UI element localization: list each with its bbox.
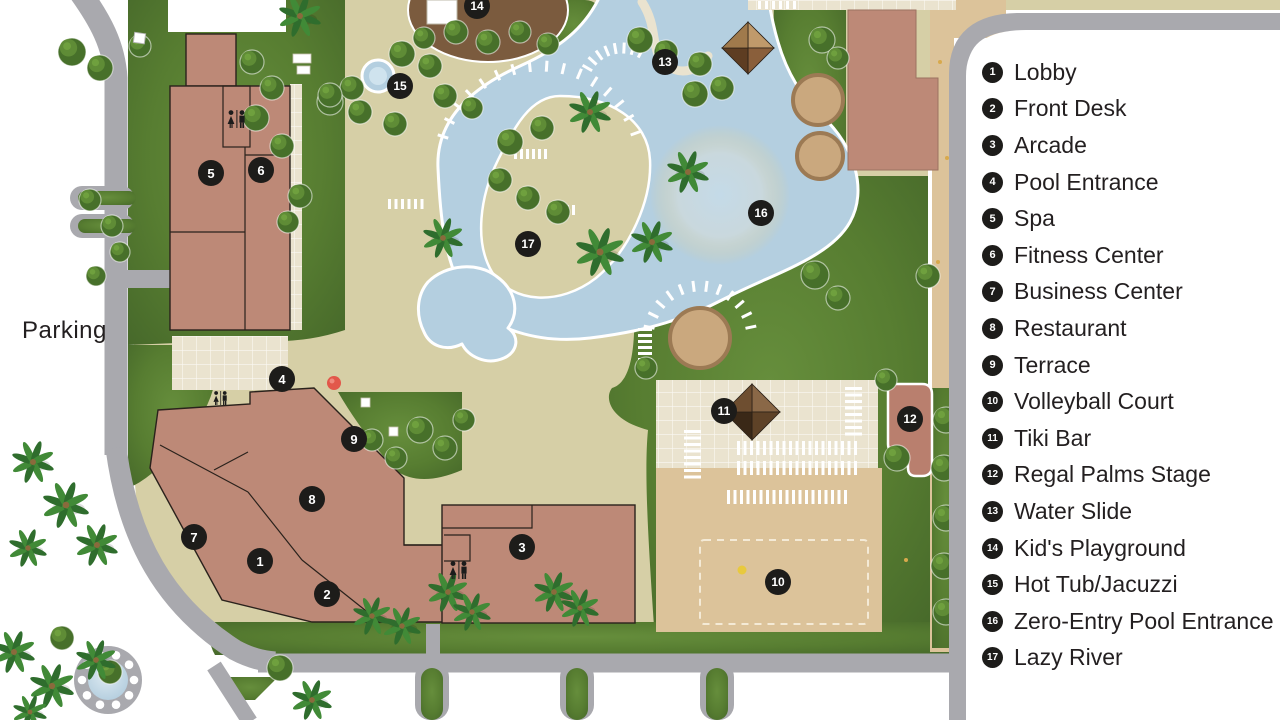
legend-item-4: 4Pool Entrance xyxy=(982,164,1274,201)
bush-icon xyxy=(79,189,101,211)
bush-icon xyxy=(488,168,512,192)
map-marker-2: 2 xyxy=(314,581,340,607)
map-marker-16: 16 xyxy=(748,200,774,226)
bush-icon xyxy=(433,84,457,108)
map-marker-10: 10 xyxy=(765,569,791,595)
palm-tree-icon xyxy=(8,528,47,567)
legend-bullet: 12 xyxy=(982,464,1003,485)
legend-item-16: 16Zero-Entry Pool Entrance xyxy=(982,603,1274,640)
map-marker-1: 1 xyxy=(247,548,273,574)
bush-icon xyxy=(710,76,734,100)
legend-item-15: 15Hot Tub/Jacuzzi xyxy=(982,566,1274,603)
legend-label: Business Center xyxy=(1014,278,1183,305)
legend-bullet: 4 xyxy=(982,172,1003,193)
bush-icon xyxy=(277,211,299,233)
legend-item-11: 11Tiki Bar xyxy=(982,420,1274,457)
bush-icon xyxy=(407,417,433,443)
legend-item-17: 17Lazy River xyxy=(982,640,1274,677)
bush-icon xyxy=(58,38,86,66)
bush-icon xyxy=(389,41,415,67)
bush-icon xyxy=(243,105,269,131)
map-marker-6: 6 xyxy=(248,157,274,183)
map-marker-12: 12 xyxy=(897,406,923,432)
legend-item-1: 1Lobby xyxy=(982,54,1274,91)
bush-icon xyxy=(826,286,850,310)
legend-item-13: 13Water Slide xyxy=(982,493,1274,530)
bush-icon xyxy=(348,100,372,124)
map-marker-7: 7 xyxy=(181,524,207,550)
bush-icon xyxy=(50,626,74,650)
bush-icon xyxy=(87,55,113,81)
legend-item-2: 2Front Desk xyxy=(982,91,1274,128)
legend-bullet: 6 xyxy=(982,245,1003,266)
legend-label: Lobby xyxy=(1014,59,1077,86)
legend-item-8: 8Restaurant xyxy=(982,310,1274,347)
legend-list: 1Lobby2Front Desk3Arcade4Pool Entrance5S… xyxy=(982,54,1274,676)
legend-label: Pool Entrance xyxy=(1014,169,1158,196)
palm-tree-icon xyxy=(13,695,48,720)
bush-icon xyxy=(383,112,407,136)
bush-icon xyxy=(385,447,407,469)
legend-label: Terrace xyxy=(1014,352,1091,379)
legend-label: Lazy River xyxy=(1014,644,1123,671)
bush-icon xyxy=(288,184,312,208)
bush-icon xyxy=(260,76,284,100)
map-marker-5: 5 xyxy=(198,160,224,186)
map-marker-4: 4 xyxy=(269,366,295,392)
map-marker-13: 13 xyxy=(652,49,678,75)
legend-label: Hot Tub/Jacuzzi xyxy=(1014,571,1178,598)
legend-label: Tiki Bar xyxy=(1014,425,1091,452)
legend-item-14: 14Kid's Playground xyxy=(982,530,1274,567)
palm-tree-icon xyxy=(42,481,90,529)
map-marker-9: 9 xyxy=(341,426,367,452)
bush-icon xyxy=(827,47,849,69)
legend-bullet: 17 xyxy=(982,647,1003,668)
legend-item-6: 6Fitness Center xyxy=(982,237,1274,274)
bush-icon xyxy=(461,97,483,119)
white-gap xyxy=(168,0,286,32)
legend-bullet: 5 xyxy=(982,208,1003,229)
bush-icon xyxy=(270,134,294,158)
legend-label: Arcade xyxy=(1014,132,1087,159)
bush-icon xyxy=(516,186,540,210)
legend-item-7: 7Business Center xyxy=(982,274,1274,311)
bush-icon xyxy=(110,242,130,262)
palm-tree-icon xyxy=(291,679,332,720)
bush-icon xyxy=(627,27,653,53)
volleyball xyxy=(738,566,747,575)
bush-icon xyxy=(340,76,364,100)
legend-item-12: 12Regal Palms Stage xyxy=(982,457,1274,494)
legend-label: Kid's Playground xyxy=(1014,535,1186,562)
bush-icon xyxy=(86,266,106,286)
legend-label: Regal Palms Stage xyxy=(1014,461,1211,488)
bush-icon xyxy=(635,357,657,379)
map-marker-17: 17 xyxy=(515,231,541,257)
bush-icon xyxy=(546,200,570,224)
legend-item-9: 9Terrace xyxy=(982,347,1274,384)
parking-label: Parking xyxy=(22,317,107,345)
sign xyxy=(133,32,145,43)
bush-icon xyxy=(240,50,264,74)
bush-icon xyxy=(875,369,897,391)
bush-icon xyxy=(267,655,293,681)
bush-icon xyxy=(530,116,554,140)
bush-icon xyxy=(318,83,342,107)
legend-label: Volleyball Court xyxy=(1014,388,1174,415)
bush-icon xyxy=(682,81,708,107)
legend-label: Restaurant xyxy=(1014,315,1127,342)
legend-bullet: 16 xyxy=(982,611,1003,632)
bush-icon xyxy=(537,33,559,55)
legend-label: Fitness Center xyxy=(1014,242,1164,269)
bush-icon xyxy=(101,215,123,237)
legend-bullet: 1 xyxy=(982,62,1003,83)
legend-bullet: 13 xyxy=(982,501,1003,522)
palm-tree-icon xyxy=(0,630,36,674)
bush-icon xyxy=(453,409,475,431)
legend-label: Spa xyxy=(1014,205,1055,232)
legend-item-5: 5Spa xyxy=(982,200,1274,237)
legend-bullet: 9 xyxy=(982,355,1003,376)
legend-bullet: 2 xyxy=(982,98,1003,119)
legend-bullet: 14 xyxy=(982,538,1003,559)
map-marker-11: 11 xyxy=(711,398,737,424)
legend-bullet: 11 xyxy=(982,428,1003,449)
legend-item-3: 3Arcade xyxy=(982,127,1274,164)
legend-bullet: 8 xyxy=(982,318,1003,339)
legend-label: Front Desk xyxy=(1014,95,1126,122)
legend-bullet: 7 xyxy=(982,281,1003,302)
bush-icon xyxy=(418,54,442,78)
bush-icon xyxy=(884,445,910,471)
bush-icon xyxy=(476,30,500,54)
palm-tree-icon xyxy=(11,440,55,484)
bush-icon xyxy=(688,52,712,76)
resort-map-page: Parking 1234567891011121314151617 1Lobby… xyxy=(0,0,1280,720)
red-ball xyxy=(327,376,341,390)
legend-item-10: 10Volleyball Court xyxy=(982,383,1274,420)
map-marker-15: 15 xyxy=(387,73,413,99)
bush-icon xyxy=(433,436,457,460)
legend-bullet: 15 xyxy=(982,574,1003,595)
zero-entry-fade xyxy=(650,125,790,265)
bush-icon xyxy=(444,20,468,44)
map-marker-3: 3 xyxy=(509,534,535,560)
legend-bullet: 10 xyxy=(982,391,1003,412)
legend-bullet: 3 xyxy=(982,135,1003,156)
bush-icon xyxy=(801,261,829,289)
legend-label: Water Slide xyxy=(1014,498,1132,525)
palm-tree-icon xyxy=(75,523,119,567)
legend-label: Zero-Entry Pool Entrance xyxy=(1014,608,1274,635)
bush-icon xyxy=(413,27,435,49)
bush-icon xyxy=(509,21,531,43)
bush-icon xyxy=(916,264,940,288)
map-marker-8: 8 xyxy=(299,486,325,512)
bush-icon xyxy=(497,129,523,155)
